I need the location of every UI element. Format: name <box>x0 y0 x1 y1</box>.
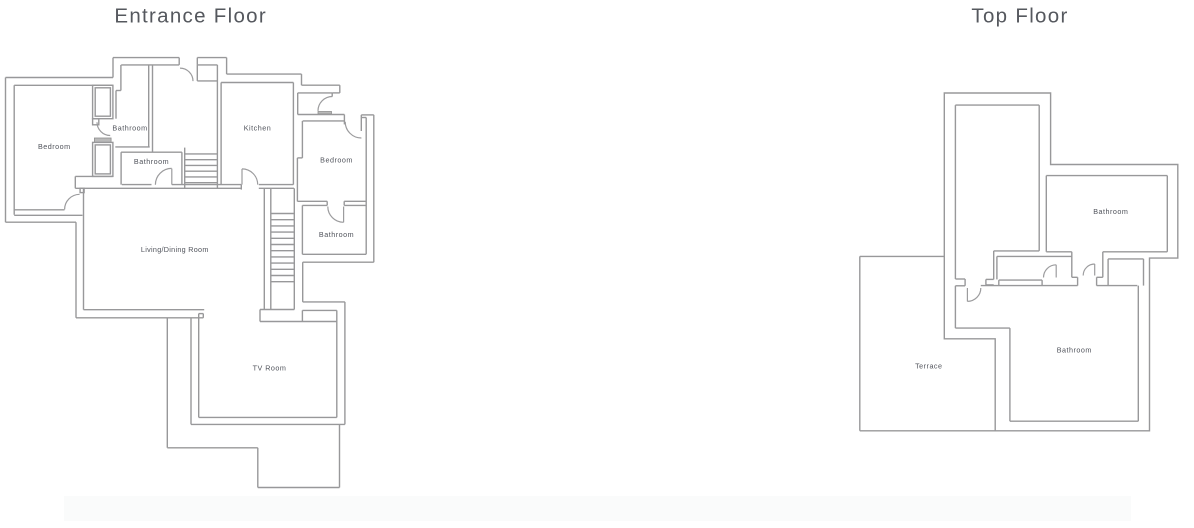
svg-text:Entrance Floor: Entrance Floor <box>114 5 267 28</box>
svg-text:Kitchen: Kitchen <box>244 123 271 132</box>
svg-text:Bathroom: Bathroom <box>319 230 354 239</box>
svg-text:Bedroom: Bedroom <box>38 142 71 151</box>
svg-text:Bathroom: Bathroom <box>112 123 147 132</box>
svg-text:Bathroom: Bathroom <box>1093 207 1128 216</box>
svg-text:Bathroom: Bathroom <box>134 157 169 166</box>
svg-text:Terrace: Terrace <box>915 362 942 371</box>
svg-text:Top Floor: Top Floor <box>971 5 1068 28</box>
svg-text:Bedroom: Bedroom <box>320 156 353 165</box>
svg-text:Bathroom: Bathroom <box>1057 345 1092 354</box>
svg-text:Living/Dining Room: Living/Dining Room <box>141 245 209 254</box>
svg-text:TV Room: TV Room <box>253 364 287 373</box>
